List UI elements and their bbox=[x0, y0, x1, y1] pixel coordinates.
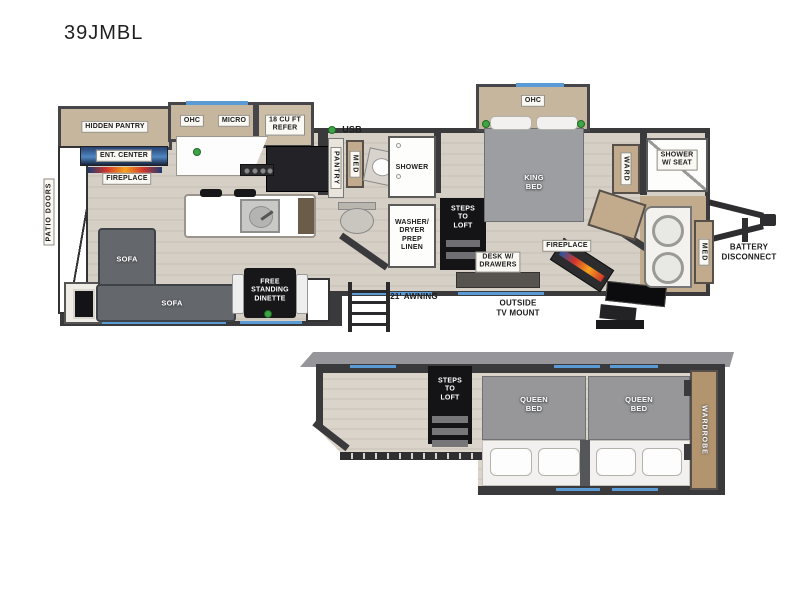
island-stool-icon-2 bbox=[234, 189, 256, 197]
steps-main-tread bbox=[446, 240, 480, 247]
shower-w-seat-label: SHOWER W/ SEAT bbox=[657, 150, 698, 171]
loft-wardrobe-label: WARDROBE bbox=[700, 402, 709, 458]
toilet-bowl-icon bbox=[340, 208, 374, 234]
ladder-icon bbox=[348, 282, 390, 332]
living-fireplace-label: FIREPLACE bbox=[102, 173, 151, 185]
queen-bed-left-label: QUEEN BED bbox=[517, 394, 551, 414]
dinette-chair-icon bbox=[232, 274, 244, 314]
awning-label: 21' AWNING bbox=[387, 291, 441, 303]
queen-left-pillow-icon-2 bbox=[538, 448, 580, 476]
rear-window-accent-2 bbox=[240, 321, 302, 324]
floorplan-title: 39JMBL bbox=[64, 22, 143, 45]
bed-divider bbox=[580, 440, 590, 486]
loft-bottom-accent bbox=[556, 488, 600, 491]
loft-bottom-wall bbox=[478, 486, 724, 495]
loft-window-accent bbox=[350, 365, 396, 368]
kitchen-window-accent bbox=[186, 101, 248, 105]
desk-label: DESK W/ DRAWERS bbox=[475, 252, 520, 273]
wardrobe-hinge bbox=[684, 380, 691, 396]
steps-to-loft-main-label: STEPS TO LOFT bbox=[448, 204, 478, 231]
loft-window-accent-2 bbox=[554, 365, 600, 368]
refrigerator-label: 18 CU FT REFER bbox=[265, 115, 305, 136]
queen-bed-right bbox=[588, 376, 690, 486]
loft-steps-label: STEPS TO LOFT bbox=[435, 376, 465, 403]
loft-left-wall bbox=[316, 366, 323, 426]
loft-railing bbox=[340, 452, 482, 460]
patio-doors-label: PATIO DOORS bbox=[44, 179, 55, 246]
loft-step-tread bbox=[432, 416, 468, 423]
front-bath-vanity bbox=[644, 206, 692, 288]
vanity-sink-icon bbox=[652, 215, 684, 247]
side-window-accent-2 bbox=[458, 292, 544, 295]
front-med-label: MED bbox=[699, 239, 710, 266]
pantry-label: PANTRY bbox=[331, 147, 342, 189]
kitchen-ohc-label: OHC bbox=[180, 115, 204, 127]
kitchen-sink-icon bbox=[240, 199, 280, 233]
stove-counter bbox=[266, 146, 330, 192]
dinette-label: FREE STANDING DINETTE bbox=[248, 277, 292, 304]
hitch-icon bbox=[708, 200, 778, 246]
king-usb-marker-left bbox=[482, 120, 490, 128]
loft-bottom-accent-2 bbox=[612, 488, 658, 491]
king-pillow-icon bbox=[490, 116, 532, 130]
queen-left-pillow-icon bbox=[490, 448, 532, 476]
floorplan-image: 39JMBL PATIO DOORS HIDDEN PANTRY OHC MIC… bbox=[0, 0, 800, 600]
wardrobe-hinge-2 bbox=[684, 444, 691, 460]
dinette-usb-marker bbox=[264, 310, 272, 318]
bedroom-ohc-label: OHC bbox=[521, 95, 545, 107]
ent-center-label: ENT. CENTER bbox=[96, 150, 152, 162]
battery-disconnect-label: BATTERY DISCONNECT bbox=[719, 241, 780, 262]
desk bbox=[456, 272, 540, 288]
sofa-side-label: SOFA bbox=[113, 254, 140, 265]
shower-label: SHOWER bbox=[393, 163, 432, 173]
queen-bed-right-label: QUEEN BED bbox=[622, 394, 656, 414]
bedroom-window-accent bbox=[516, 83, 564, 87]
outside-tv-label: OUTSIDE TV MOUNT bbox=[493, 297, 542, 318]
king-bed-label: KING BED bbox=[521, 172, 547, 192]
entry-door bbox=[306, 278, 330, 322]
queen-right-pillow-icon-2 bbox=[642, 448, 682, 476]
loft-step-tread-3 bbox=[432, 440, 468, 447]
hidden-pantry-label: HIDDEN PANTRY bbox=[81, 121, 148, 133]
seam-wall bbox=[330, 291, 342, 326]
med-label: MED bbox=[350, 151, 361, 178]
micro-label: MICRO bbox=[218, 115, 250, 127]
washer-dryer-label: WASHER/ DRYER PREP LINEN bbox=[392, 218, 432, 254]
cooktop-icon bbox=[240, 164, 274, 176]
loft-step-tread-2 bbox=[432, 428, 468, 435]
island-stool-icon bbox=[200, 189, 222, 197]
island-end-cabinet bbox=[298, 198, 314, 234]
queen-right-pillow-icon bbox=[596, 448, 636, 476]
vanity-sink-icon-2 bbox=[652, 252, 684, 284]
usb-marker bbox=[328, 126, 336, 134]
king-pillow-icon-2 bbox=[536, 116, 578, 130]
kitchen-usb-marker bbox=[193, 148, 201, 156]
usb-label: USB bbox=[339, 124, 365, 137]
loft-right-wall bbox=[717, 364, 725, 495]
queen-bed-left bbox=[482, 376, 586, 486]
sofa-rear-label: SOFA bbox=[158, 298, 185, 309]
bedroom-fireplace-label: FIREPLACE bbox=[542, 240, 591, 252]
ward-label: WARD bbox=[621, 152, 632, 185]
king-usb-marker-right bbox=[577, 120, 585, 128]
loft-window-accent-3 bbox=[610, 365, 658, 368]
dinette-chair-icon-2 bbox=[296, 274, 308, 314]
